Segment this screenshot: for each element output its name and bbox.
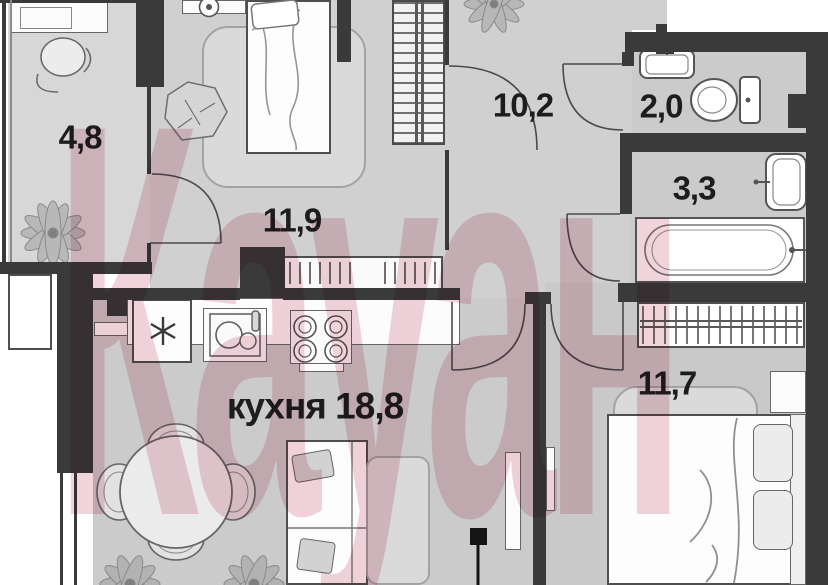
wall-shelf [94,322,128,336]
bed-pillow [753,424,793,482]
ac-unit-box [8,274,52,350]
wall-segment [622,52,634,66]
kitchen-sink-unit [203,308,267,362]
fridge [132,299,192,363]
wall-block [788,94,806,128]
wall-segment [2,0,6,264]
wardrobe-rod [421,2,424,143]
closet-hangers-left [289,262,351,284]
wall-block [240,247,285,298]
bedroom-1-wardrobe [392,0,445,145]
bathroom-area-label: 3,3 [673,172,716,205]
wall-mass [57,267,93,473]
closet-hangers-right [384,262,439,284]
wall-stub [337,0,351,62]
window-line [74,473,77,585]
bathroom-floor [630,150,808,283]
wall-segment [445,0,449,65]
nightstand [770,371,806,413]
window-line [147,87,151,174]
wardrobe-rod [415,2,418,143]
floor-plan: 4,8 11,9 10,2 2,0 3,3 11,7 кухня 18,8 Ка… [0,0,828,585]
stove-drawer [299,363,344,372]
kitchen-rug [366,456,430,585]
wall-segment [620,152,632,214]
bedroom-2-wardrobe-rod [640,320,802,322]
tv-kitchen [505,452,521,550]
bedroom-2-wardrobe-hangers [642,306,800,344]
stove [290,310,352,364]
hallway-area-label: 10,2 [493,89,553,122]
floor-lamp [470,528,487,545]
wc-area-label: 2,0 [640,90,683,123]
window-line [60,473,63,585]
bedroom-1-bed [246,0,331,154]
bed-pillow [753,490,793,550]
partition-wall [533,300,546,585]
balcony-area-label: 4,8 [59,121,102,154]
wall-pylon [136,0,164,87]
kitchen-area-label: кухня 18,8 [227,388,403,425]
tv-bedroom-2 [546,447,555,511]
window-line [147,243,151,262]
wall-segment [618,283,808,302]
wall-stub [107,298,127,316]
wall-segment [620,133,808,152]
hallway-floor [449,28,632,302]
wall-segment [445,150,449,250]
bedroom-2-area-label: 11,7 [638,367,696,400]
wall-segment [0,0,136,3]
hallway-floor-top [449,0,667,30]
wall-segment [283,288,460,300]
wall-segment [625,32,808,52]
outer-wall-right [806,30,828,585]
wall-segment [10,0,12,262]
bedroom-1-desk [182,0,246,14]
sofa-pillow [296,538,336,575]
bedroom-2-wardrobe-rod [640,326,802,328]
outside-area [667,0,828,32]
bedroom-1-area-label: 11,9 [263,204,321,237]
balcony-desk-drawer [20,7,72,29]
